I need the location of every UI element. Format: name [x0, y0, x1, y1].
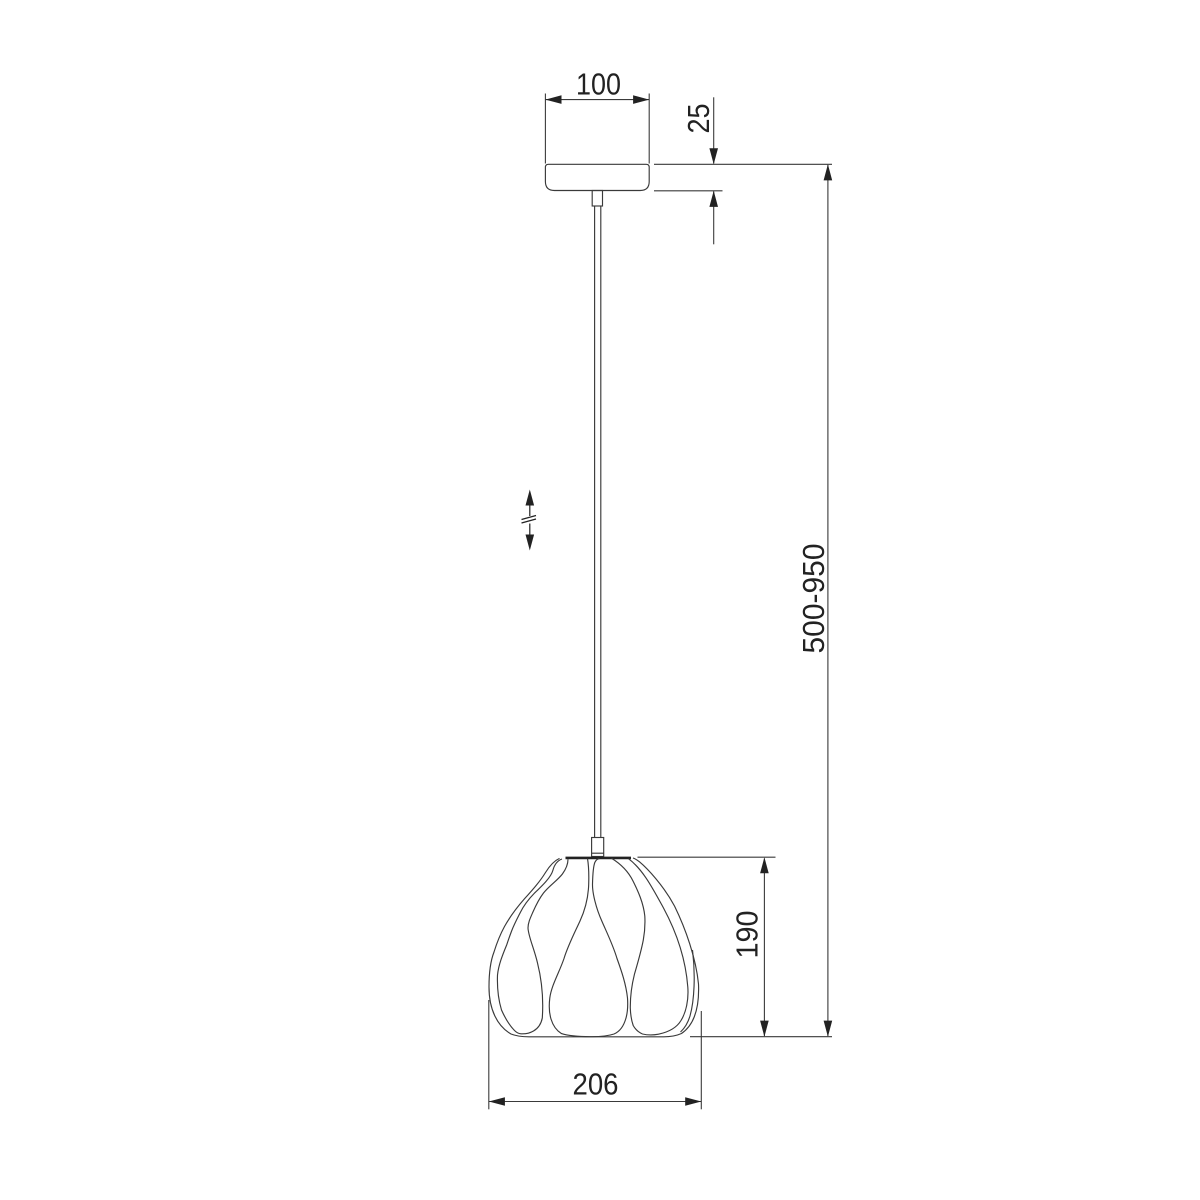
svg-text:500-950: 500-950 — [796, 544, 831, 654]
svg-text:190: 190 — [729, 911, 764, 959]
svg-text:25: 25 — [681, 104, 716, 134]
svg-text:100: 100 — [576, 67, 621, 102]
svg-text:206: 206 — [573, 1067, 619, 1102]
